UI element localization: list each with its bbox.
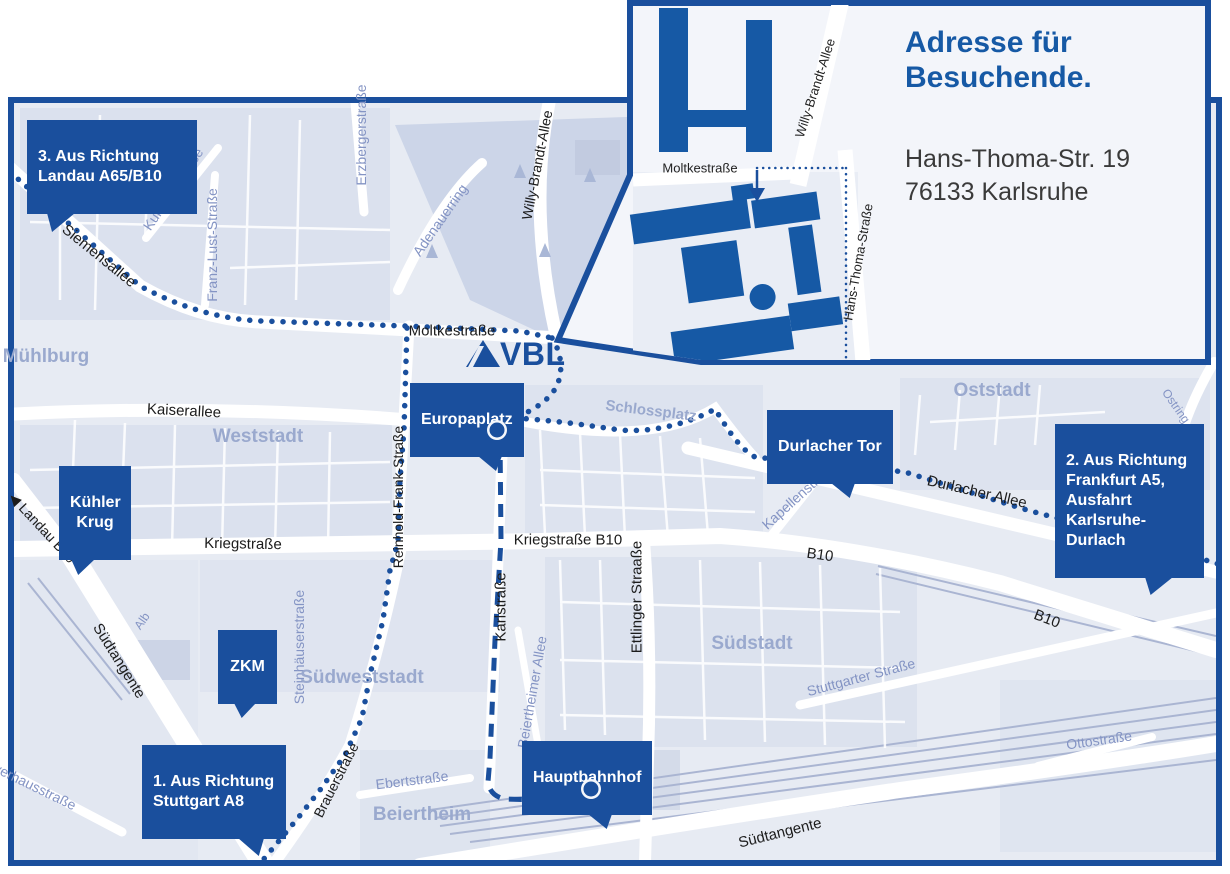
callout-kuehler-krug: Kühler Krug [59,466,131,560]
callout-from-stuttgart: 1. Aus Richtung Stuttgart A8 [142,745,286,839]
hauptbahnhof-marker [584,782,599,797]
street-label-kriegstrasse-b10: Kriegstraße B10 [514,532,622,549]
callout-zkm-label: ZKM [230,658,265,675]
street-label-kriegstrasse: Kriegstraße [204,535,282,553]
street-label-karlstrasse: Karlstraße [493,572,510,641]
inset-title: Adresse für Besuchende. [905,26,1092,95]
callout-from-frankfurt-label: 2. Aus Richtung Frankfurt A5, Ausfahrt K… [1066,452,1187,549]
vbl-logo: VBL [466,340,566,367]
district-label-suedstadt: Südstadt [711,633,792,655]
vbl-directions-map-page: { "colors":{ "primary_blue":"#1a4f9d","h… [0,0,1230,874]
callout-from-stuttgart-label: 1. Aus Richtung Stuttgart A8 [153,773,274,810]
street-label-ettlinger-strasse: Ettlinger Straaße [629,541,646,654]
district-label-suedweststadt: Südweststadt [300,667,424,689]
vbl-logo-text: VBL [500,341,566,367]
callout-from-frankfurt: 2. Aus Richtung Frankfurt A5, Ausfahrt K… [1055,424,1204,578]
district-label-oststadt: Oststadt [953,380,1030,402]
street-label-reinhold-frank-strasse: Reinhold-Frank-Straße [390,426,406,568]
street-label-erzbergerstrasse: Erzbergerstraße [353,84,369,185]
inset-address-line2: 76133 Karlsruhe [905,176,1130,209]
callout-europaplatz: Europaplatz [410,383,524,457]
inset-address-line1: Hans-Thoma-Str. 19 [905,143,1130,176]
callout-hauptbahnhof: Hauptbahnhof [522,741,652,815]
vbl-triangle-icon [466,340,500,367]
inset-address: Hans-Thoma-Str. 19 76133 Karlsruhe [905,143,1130,208]
callout-durlacher-tor-label: Durlacher Tor [778,438,882,455]
street-label-moltkestrasse: Moltkestraße [409,323,496,340]
district-label-weststadt: Weststadt [213,426,303,448]
street-label-franz-lust-strasse: Franz-Lust-Straße [204,188,220,302]
callout-zkm: ZKM [218,630,277,704]
europaplatz-marker [490,423,505,438]
callout-durlacher-tor: Durlacher Tor [767,410,893,484]
district-label-muehlburg: Mühlburg [3,346,90,368]
inset-street-label-moltkestrasse: Moltkestraße [662,161,737,176]
street-label-b10-mid: B10 [806,545,835,566]
callout-from-landau-label: 3. Aus Richtung Landau A65/B10 [38,148,162,185]
callout-kuehler-krug-label: Kühler Krug [70,494,121,531]
district-label-beiertheim: Beiertheim [373,804,471,826]
callout-from-landau: 3. Aus Richtung Landau A65/B10 [27,120,197,214]
